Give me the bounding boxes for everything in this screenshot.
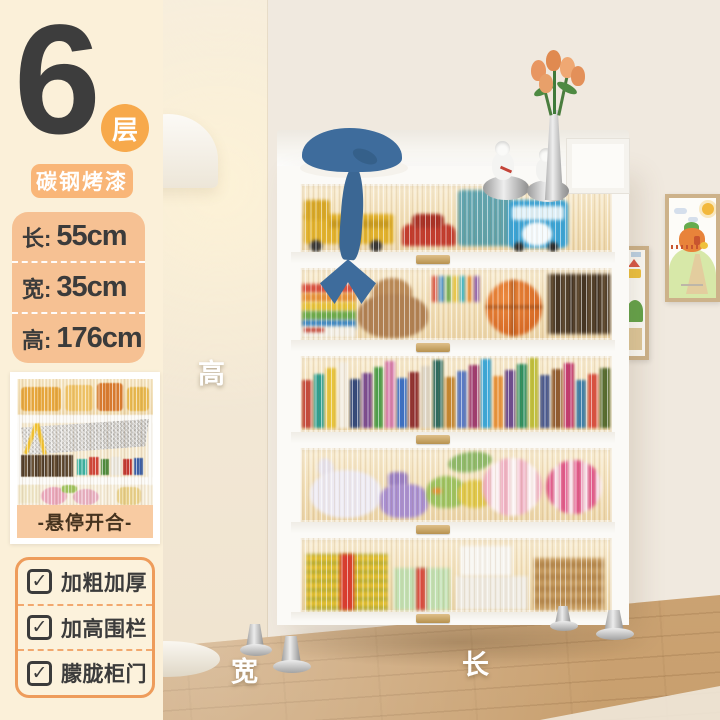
thumbnail-image: [17, 379, 153, 505]
feature-row: ✓ 加粗加厚: [18, 560, 152, 604]
decor-shape: [315, 456, 336, 481]
book-spine: [314, 374, 324, 428]
door-row-5: [300, 538, 612, 612]
checkbox-icon: ✓: [27, 661, 52, 686]
decor-shape: [402, 224, 456, 246]
open-angle-arrow: [35, 423, 47, 455]
decor-shape: [694, 236, 700, 245]
dimensions-card: 长: 55cm 宽: 35cm 高: 176cm: [12, 212, 145, 363]
book-spine: [517, 364, 527, 428]
book-spine: [540, 375, 550, 428]
door-handle: [416, 614, 450, 623]
decor-shape: [117, 487, 141, 505]
decor-shape: [432, 276, 437, 302]
book-spine: [374, 367, 384, 428]
decor-shape: [681, 284, 703, 286]
decor-shape: [627, 300, 643, 322]
decor-shape: [21, 387, 61, 411]
book-spine: [505, 370, 515, 428]
dimension-label: 长:: [22, 221, 51, 253]
decor-shape: [548, 242, 558, 252]
decor-shape: [340, 554, 354, 610]
decor-shape: [370, 240, 382, 252]
decor-shape: [546, 460, 602, 514]
book-spine: [421, 366, 431, 428]
decor-shape: [439, 276, 444, 302]
book-spine: [409, 372, 419, 428]
book-spine: [469, 365, 479, 428]
decor-shape: [127, 387, 149, 411]
decor-shape: [628, 259, 640, 267]
decor-shape: [97, 383, 123, 411]
decor-shape: [548, 274, 610, 334]
decor-shape: [17, 415, 22, 505]
decor-shape: [456, 576, 528, 610]
decor-shape: [21, 455, 73, 477]
decor-shape: [700, 242, 708, 249]
decor-shape: [631, 252, 641, 257]
decor-shape: [426, 476, 466, 508]
checkbox-icon: ✓: [27, 615, 52, 640]
decor-shape: [486, 306, 542, 308]
shelf-rail: [291, 340, 615, 356]
wall-corner: [163, 0, 268, 652]
photo-frame-on-top: [566, 138, 630, 194]
book-spine: [552, 369, 562, 428]
book-spine: [600, 368, 610, 428]
decor-shape: [302, 302, 356, 311]
book-spine: [588, 374, 598, 428]
feature-label: 朦胧柜门: [61, 658, 147, 688]
decor-shape: [310, 470, 382, 518]
decor-shape: [358, 294, 428, 338]
decor-shape: [482, 458, 542, 516]
decor-shape: [628, 328, 642, 350]
book-spine: [457, 371, 467, 428]
book-spine: [445, 377, 455, 428]
dimension-value: 55cm: [56, 220, 126, 253]
shelf-rail: [291, 432, 615, 448]
dimension-row-height: 高: 176cm: [12, 312, 145, 363]
decor-shape: [306, 554, 388, 610]
decor-shape: [89, 457, 99, 475]
decor-shape: [61, 485, 77, 493]
door-handle: [416, 525, 450, 534]
dimension-value: 176cm: [56, 322, 141, 355]
hover-door-thumbnail: -悬停开合-: [10, 372, 160, 544]
door-row-4: [300, 448, 612, 522]
decor-shape: [514, 242, 524, 252]
decor-shape: [512, 206, 564, 220]
shelf-rail: [291, 522, 615, 538]
book-spine: [362, 373, 372, 428]
decor-shape: [702, 203, 714, 215]
book-spine: [576, 380, 586, 428]
storage-cabinet: [277, 130, 629, 660]
door-handle: [416, 435, 450, 444]
door-handle: [416, 343, 450, 352]
decor-shape: [508, 200, 568, 248]
cabinet-foot: [273, 660, 311, 673]
decor-shape: [304, 328, 324, 332]
decor-shape: [19, 485, 39, 503]
book-spine: [302, 380, 312, 428]
tulip-stem: [553, 64, 556, 114]
decor-shape: [486, 280, 542, 336]
dimension-label: 高:: [22, 323, 51, 355]
decor-shape: [17, 379, 153, 415]
decor-shape: [302, 320, 356, 329]
decor-shape: [671, 245, 701, 249]
cabinet-foot: [596, 628, 634, 640]
features-card: ✓ 加粗加厚 ✓ 加高围栏 ✓ 朦胧柜门: [15, 557, 155, 698]
feature-row: ✓ 加高围栏: [18, 604, 152, 650]
book-spine: [350, 379, 360, 428]
feature-label: 加粗加厚: [61, 567, 147, 597]
book-spine: [326, 368, 336, 428]
thumbnail-caption: -悬停开合-: [17, 505, 153, 538]
decor-shape: [101, 459, 109, 475]
book-spine: [564, 363, 574, 428]
decor-shape: [302, 311, 356, 320]
decor-shape: [522, 222, 552, 246]
decor-shape: [77, 459, 87, 475]
decor-shape: [460, 546, 512, 576]
decor-shape: [467, 276, 472, 302]
decor-shape: [148, 415, 153, 505]
decor-shape: [304, 200, 330, 220]
picture-frame-right: [665, 194, 720, 302]
decor-shape: [111, 457, 121, 475]
tulip-flower: [539, 74, 553, 93]
product-image: 高 宽 长 6 层 碳钢烤漆 长: 55cm 宽: 35cm 高: 176cm: [0, 0, 720, 720]
open-door-mesh: [21, 419, 149, 455]
info-sidebar: 6 层 碳钢烤漆 长: 55cm 宽: 35cm 高: 176cm: [0, 0, 163, 720]
length-label: 长: [462, 643, 489, 682]
decor-shape: [17, 477, 153, 485]
decor-shape: [446, 276, 451, 302]
decor-shape: [388, 472, 408, 488]
decor-shape: [627, 269, 641, 278]
decor-shape: [65, 385, 93, 411]
decor-shape: [512, 280, 514, 336]
book-spine: [493, 376, 503, 428]
decor-shape: [447, 449, 493, 475]
astronaut-figurine-helmet: [495, 141, 510, 156]
feature-row: ✓ 朦胧柜门: [18, 649, 152, 695]
book-spine: [481, 359, 491, 428]
decor-shape: [310, 240, 322, 252]
layer-unit-badge: 层: [101, 104, 149, 152]
dimension-row-length: 长: 55cm: [12, 212, 145, 261]
book-spine: [338, 362, 348, 428]
width-label: 宽: [231, 650, 258, 689]
book-spine: [529, 358, 539, 428]
dimension-row-width: 宽: 35cm: [12, 261, 145, 312]
decor-shape: [432, 488, 442, 494]
layer-count-number: 6: [14, 2, 101, 158]
tulip-flower: [546, 50, 561, 71]
dimension-value: 35cm: [56, 271, 126, 304]
checkbox-icon: ✓: [27, 569, 52, 594]
decor-shape: [17, 415, 153, 423]
decor-shape: [17, 485, 153, 505]
tulip-flower: [571, 66, 585, 86]
book-spine: [433, 360, 443, 428]
decor-shape: [73, 489, 99, 505]
book-spines: [302, 356, 610, 428]
cabinet-foot: [550, 621, 578, 631]
decor-shape: [416, 568, 426, 610]
decor-shape: [394, 568, 450, 610]
book-spine: [385, 361, 395, 428]
decor-shape: [380, 484, 428, 518]
decor-shape: [412, 214, 444, 228]
door-handle: [416, 255, 450, 264]
decor-shape: [123, 459, 132, 475]
book-spine: [397, 378, 407, 428]
decor-shape: [674, 208, 687, 214]
decor-shape: [372, 278, 412, 308]
decor-shape: [134, 458, 143, 475]
decor-shape: [453, 276, 458, 302]
decor-shape: [300, 326, 356, 338]
height-label: 高: [198, 352, 225, 391]
decor-shape: [474, 276, 479, 302]
dimension-label: 宽:: [22, 272, 51, 304]
decor-shape: [458, 480, 492, 508]
decor-shape: [460, 276, 465, 302]
material-badge: 碳钢烤漆: [31, 164, 133, 198]
decor-shape: [534, 558, 604, 610]
decor-shape: [41, 487, 67, 505]
picture-frame-left: [627, 246, 649, 360]
feature-label: 加高围栏: [61, 613, 147, 643]
shelf-rail: [291, 252, 615, 268]
door-row-3: [300, 356, 612, 432]
open-angle-arrow: [24, 423, 39, 454]
